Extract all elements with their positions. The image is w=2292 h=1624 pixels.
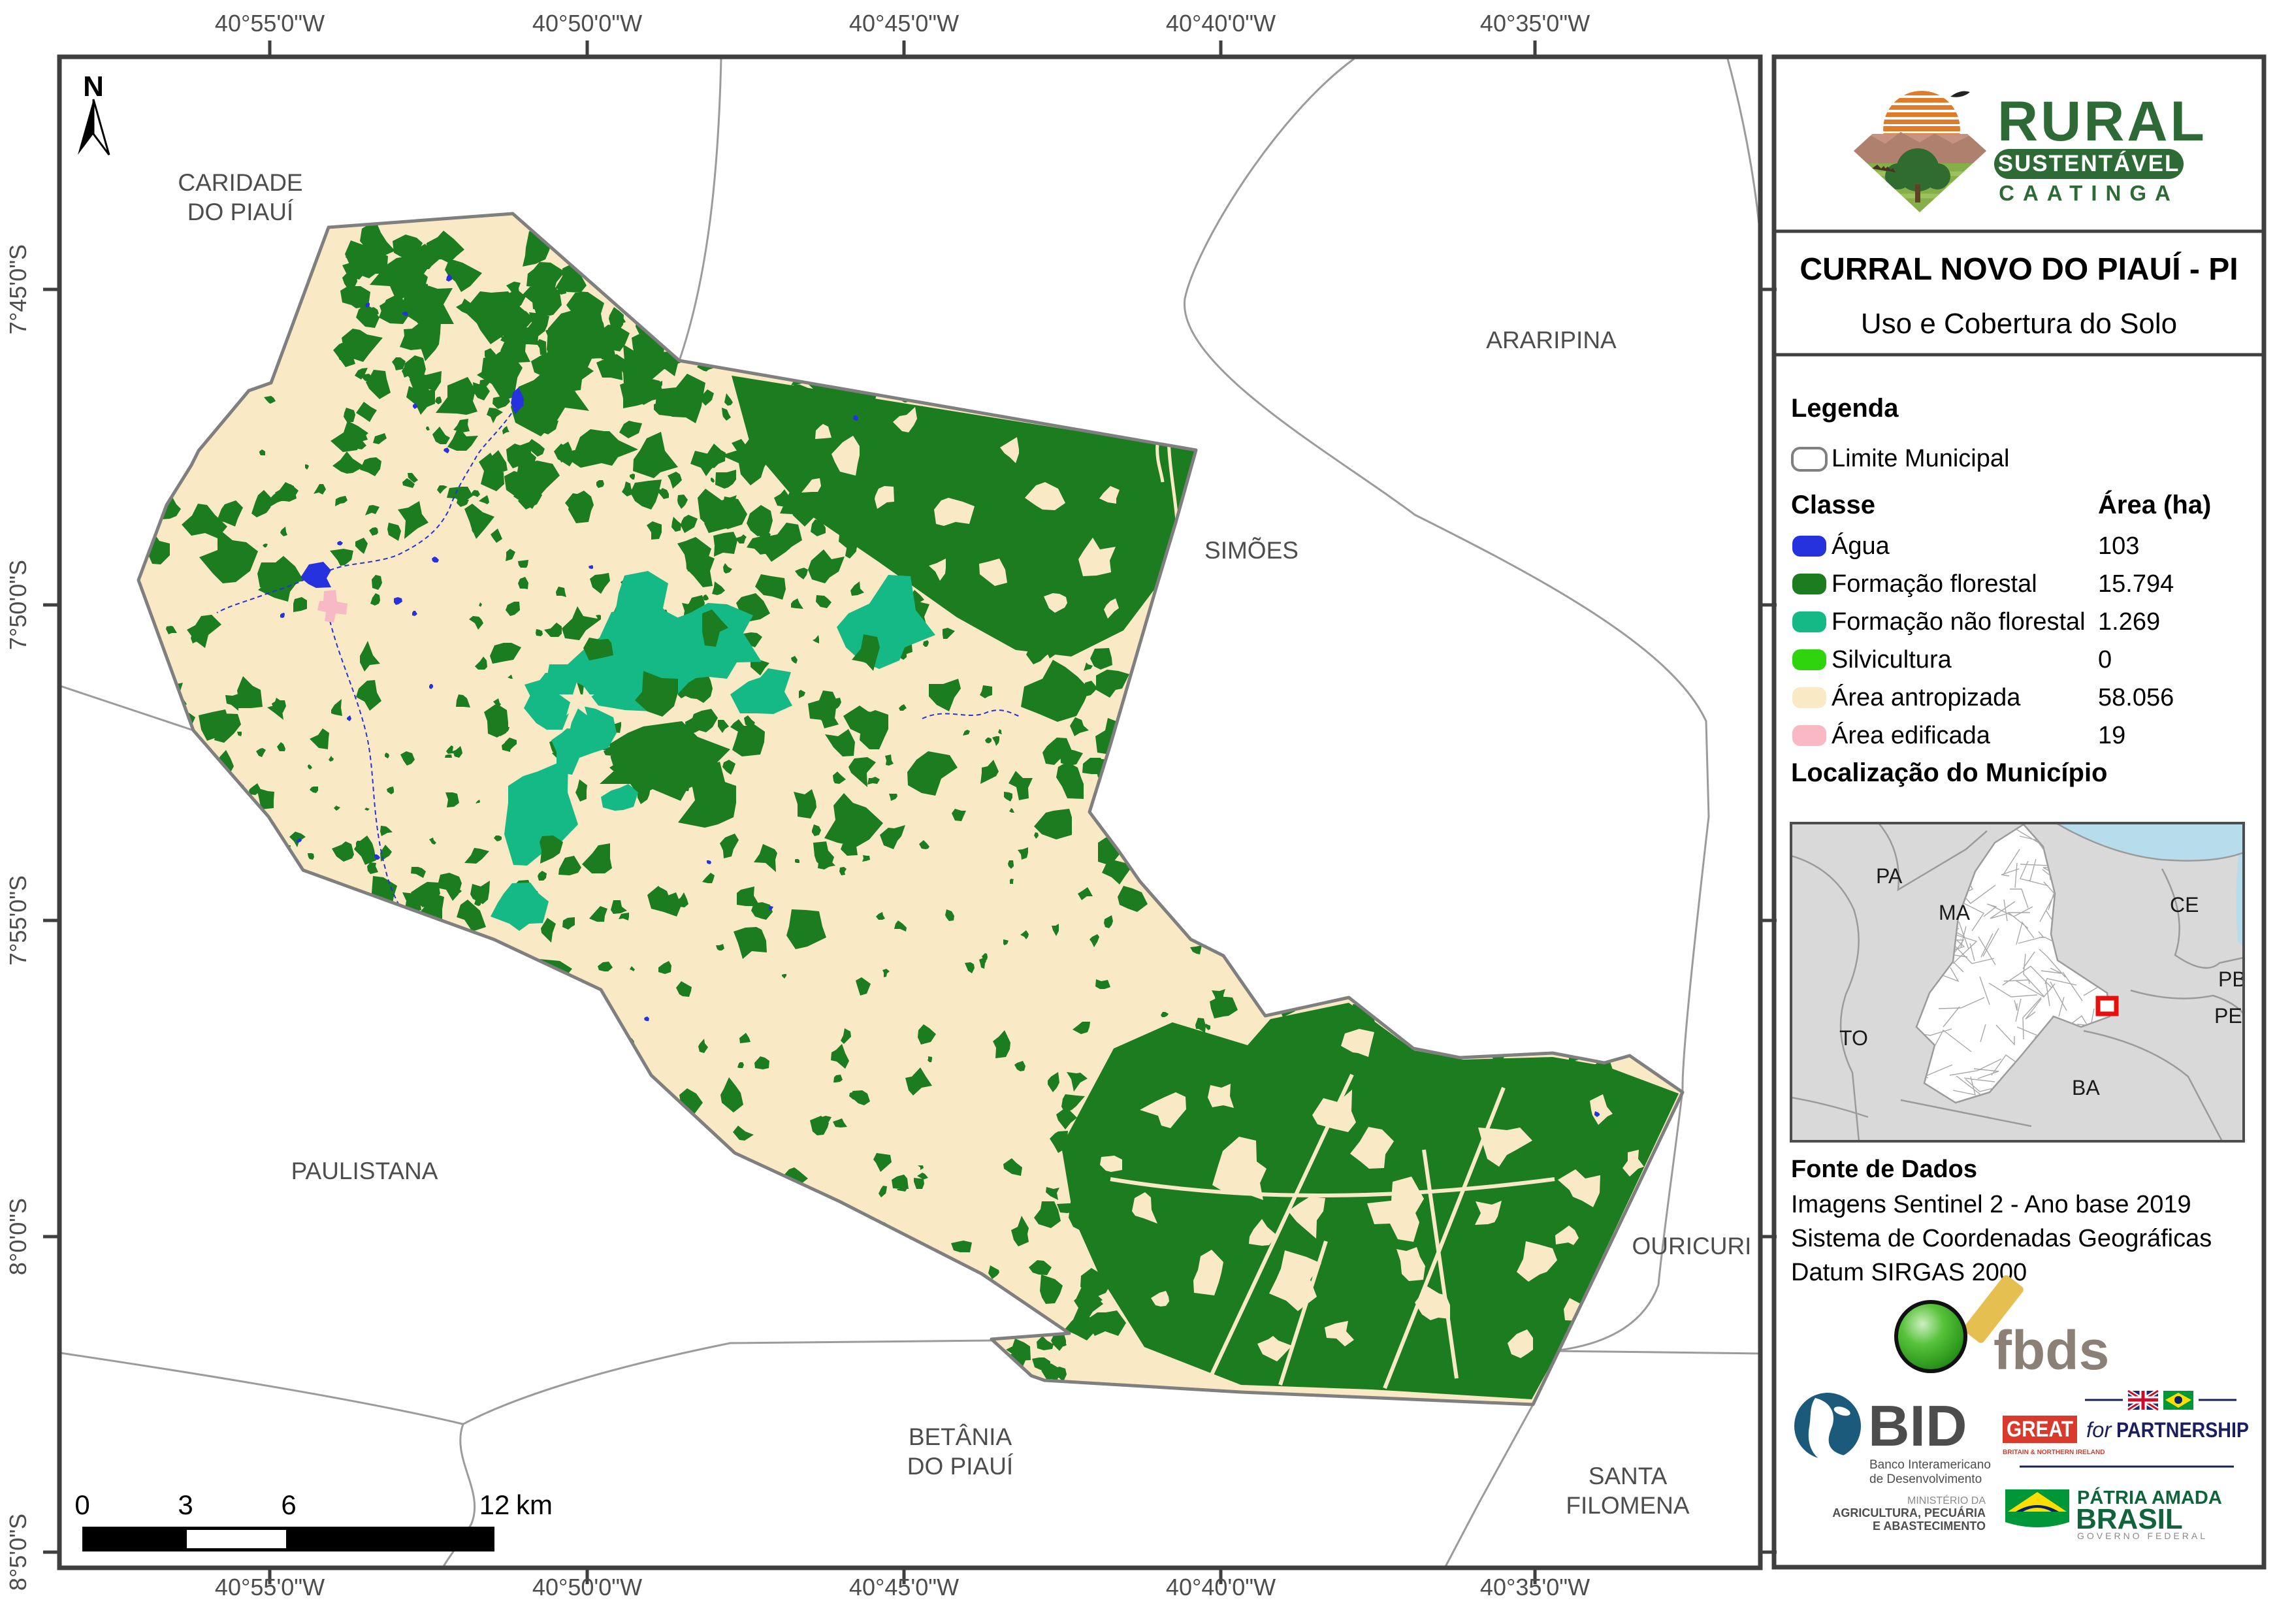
svg-text:103: 103 bbox=[2098, 532, 2139, 560]
svg-text:Imagens Sentinel 2 - Ano base: Imagens Sentinel 2 - Ano base 2019 bbox=[1791, 1191, 2191, 1218]
svg-text:BA: BA bbox=[2072, 1076, 2100, 1099]
svg-text:40°40'0"W: 40°40'0"W bbox=[1166, 1574, 1276, 1600]
svg-text:58.056: 58.056 bbox=[2098, 684, 2174, 711]
svg-text:6: 6 bbox=[281, 1489, 296, 1520]
svg-text:40°45'0"W: 40°45'0"W bbox=[849, 10, 959, 37]
svg-text:7°45'0"S: 7°45'0"S bbox=[5, 244, 31, 334]
svg-text:7°55'0"S: 7°55'0"S bbox=[5, 875, 31, 966]
svg-text:GOVERNO FEDERAL: GOVERNO FEDERAL bbox=[2077, 1531, 2208, 1541]
svg-text:CURRAL NOVO DO PIAUÍ - PI: CURRAL NOVO DO PIAUÍ - PI bbox=[1800, 252, 2238, 287]
svg-text:Classe: Classe bbox=[1791, 491, 1875, 519]
svg-text:CAATINGA: CAATINGA bbox=[1999, 181, 2179, 205]
svg-text:OURICURI: OURICURI bbox=[1632, 1233, 1752, 1259]
svg-text:BID: BID bbox=[1868, 1393, 1967, 1458]
svg-text:AGRICULTURA, PECUÁRIA: AGRICULTURA, PECUÁRIA bbox=[1832, 1506, 1986, 1519]
svg-text:ARARIPINA: ARARIPINA bbox=[1486, 327, 1617, 353]
svg-text:de Desenvolvimento: de Desenvolvimento bbox=[1869, 1472, 1982, 1486]
svg-text:N: N bbox=[83, 71, 104, 103]
svg-text:Área antropizada: Área antropizada bbox=[1832, 683, 2021, 711]
svg-text:BETÂNIA: BETÂNIA bbox=[909, 1423, 1012, 1450]
svg-text:Datum SIRGAS 2000: Datum SIRGAS 2000 bbox=[1791, 1259, 2027, 1286]
svg-text:SANTA: SANTA bbox=[1589, 1463, 1668, 1489]
svg-text:CARIDADE: CARIDADE bbox=[178, 169, 302, 196]
svg-text:Uso e Cobertura do Solo: Uso e Cobertura do Solo bbox=[1861, 308, 2177, 340]
svg-text:40°35'0"W: 40°35'0"W bbox=[1480, 10, 1590, 37]
svg-text:Fonte de Dados: Fonte de Dados bbox=[1791, 1156, 1977, 1183]
svg-text:PARTNERSHIP: PARTNERSHIP bbox=[2116, 1418, 2249, 1442]
svg-text:0: 0 bbox=[2098, 646, 2112, 674]
svg-text:40°40'0"W: 40°40'0"W bbox=[1166, 10, 1276, 37]
svg-text:for: for bbox=[2086, 1418, 2113, 1442]
svg-text:PA: PA bbox=[1876, 864, 1903, 888]
svg-text:Banco Interamericano: Banco Interamericano bbox=[1869, 1458, 1991, 1472]
svg-text:0: 0 bbox=[74, 1489, 89, 1520]
svg-text:CE: CE bbox=[2170, 893, 2199, 917]
svg-text:Silvicultura: Silvicultura bbox=[1832, 646, 1952, 674]
svg-text:SUSTENTÁVEL: SUSTENTÁVEL bbox=[1998, 150, 2180, 176]
svg-text:DO PIAUÍ: DO PIAUÍ bbox=[907, 1453, 1014, 1480]
svg-text:MA: MA bbox=[1939, 901, 1971, 924]
svg-text:Área (ha): Área (ha) bbox=[2098, 490, 2211, 519]
svg-text:PB: PB bbox=[2218, 967, 2246, 991]
svg-text:BRITAIN & NORTHERN IRELAND: BRITAIN & NORTHERN IRELAND bbox=[2003, 1449, 2105, 1456]
svg-text:TO: TO bbox=[1839, 1026, 1868, 1050]
svg-text:15.794: 15.794 bbox=[2098, 570, 2174, 598]
svg-text:8°0'0"S: 8°0'0"S bbox=[5, 1198, 31, 1275]
svg-text:Área edificada: Área edificada bbox=[1832, 721, 1991, 749]
svg-text:RURAL: RURAL bbox=[1997, 90, 2207, 153]
svg-text:Água: Água bbox=[1832, 532, 1890, 560]
svg-text:40°50'0"W: 40°50'0"W bbox=[532, 1574, 642, 1600]
svg-text:40°50'0"W: 40°50'0"W bbox=[532, 10, 642, 37]
svg-text:PAULISTANA: PAULISTANA bbox=[291, 1158, 438, 1184]
svg-text:40°35'0"W: 40°35'0"W bbox=[1480, 1574, 1590, 1600]
svg-text:SIMÕES: SIMÕES bbox=[1204, 537, 1299, 564]
svg-text:Formação não florestal: Formação não florestal bbox=[1832, 608, 2086, 636]
svg-text:E ABASTECIMENTO: E ABASTECIMENTO bbox=[1873, 1519, 1986, 1533]
svg-text:fbds: fbds bbox=[1993, 1320, 2109, 1381]
svg-text:40°45'0"W: 40°45'0"W bbox=[849, 1574, 959, 1600]
svg-text:FILOMENA: FILOMENA bbox=[1566, 1492, 1689, 1519]
svg-text:8°5'0"S: 8°5'0"S bbox=[5, 1514, 31, 1591]
svg-text:GREAT: GREAT bbox=[2007, 1417, 2073, 1442]
svg-text:40°55'0"W: 40°55'0"W bbox=[215, 1574, 325, 1600]
svg-text:Limite Municipal: Limite Municipal bbox=[1832, 445, 2009, 472]
svg-text:Localização do Município: Localização do Município bbox=[1791, 758, 2108, 787]
svg-text:Sistema de Coordenadas Geográf: Sistema de Coordenadas Geográficas bbox=[1791, 1225, 2212, 1252]
svg-text:MINISTÉRIO DA: MINISTÉRIO DA bbox=[1907, 1494, 1986, 1506]
svg-text:PE: PE bbox=[2214, 1004, 2242, 1028]
svg-text:3: 3 bbox=[178, 1489, 193, 1520]
svg-text:DO PIAUÍ: DO PIAUÍ bbox=[187, 199, 294, 225]
svg-text:km: km bbox=[516, 1489, 553, 1520]
svg-text:40°55'0"W: 40°55'0"W bbox=[215, 10, 325, 37]
svg-text:12: 12 bbox=[479, 1489, 510, 1520]
svg-text:Legenda: Legenda bbox=[1791, 394, 1899, 423]
svg-text:1.269: 1.269 bbox=[2098, 608, 2160, 636]
svg-text:7°50'0"S: 7°50'0"S bbox=[5, 560, 31, 650]
svg-text:Formação florestal: Formação florestal bbox=[1832, 570, 2037, 598]
svg-text:19: 19 bbox=[2098, 722, 2125, 749]
